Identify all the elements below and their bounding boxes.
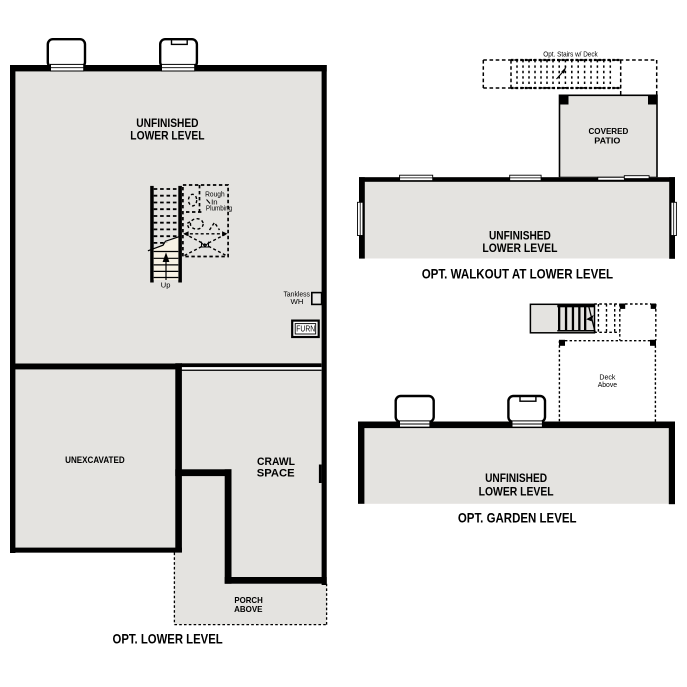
- svg-text:OPT. GARDEN LEVEL: OPT. GARDEN LEVEL: [458, 510, 577, 526]
- svg-text:Rough: Rough: [205, 192, 225, 199]
- svg-text:OPT. WALKOUT AT LOWER LEVEL: OPT. WALKOUT AT LOWER LEVEL: [422, 266, 614, 282]
- svg-text:FURN: FURN: [296, 324, 315, 333]
- svg-text:LOWER LEVEL: LOWER LEVEL: [479, 484, 554, 498]
- svg-text:PATIO: PATIO: [594, 136, 620, 146]
- svg-text:WH: WH: [291, 299, 304, 306]
- svg-text:ABOVE: ABOVE: [234, 604, 263, 614]
- svg-text:UNEXCAVATED: UNEXCAVATED: [65, 455, 125, 465]
- svg-text:CRAWL: CRAWL: [257, 456, 295, 468]
- svg-text:LOWER LEVEL: LOWER LEVEL: [482, 241, 557, 255]
- svg-text:Tankless: Tankless: [284, 292, 311, 299]
- svg-text:Opt. Stairs w/ Deck: Opt. Stairs w/ Deck: [543, 49, 598, 58]
- svg-text:LOWER LEVEL: LOWER LEVEL: [130, 128, 204, 142]
- svg-text:UNFINISHED: UNFINISHED: [485, 471, 547, 485]
- svg-text:Plumbing: Plumbing: [206, 206, 232, 213]
- svg-text:Up: Up: [161, 280, 171, 289]
- svg-text:OPT. LOWER LEVEL: OPT. LOWER LEVEL: [113, 631, 224, 647]
- svg-text:SPACE: SPACE: [257, 468, 295, 480]
- svg-text:Above: Above: [598, 380, 617, 389]
